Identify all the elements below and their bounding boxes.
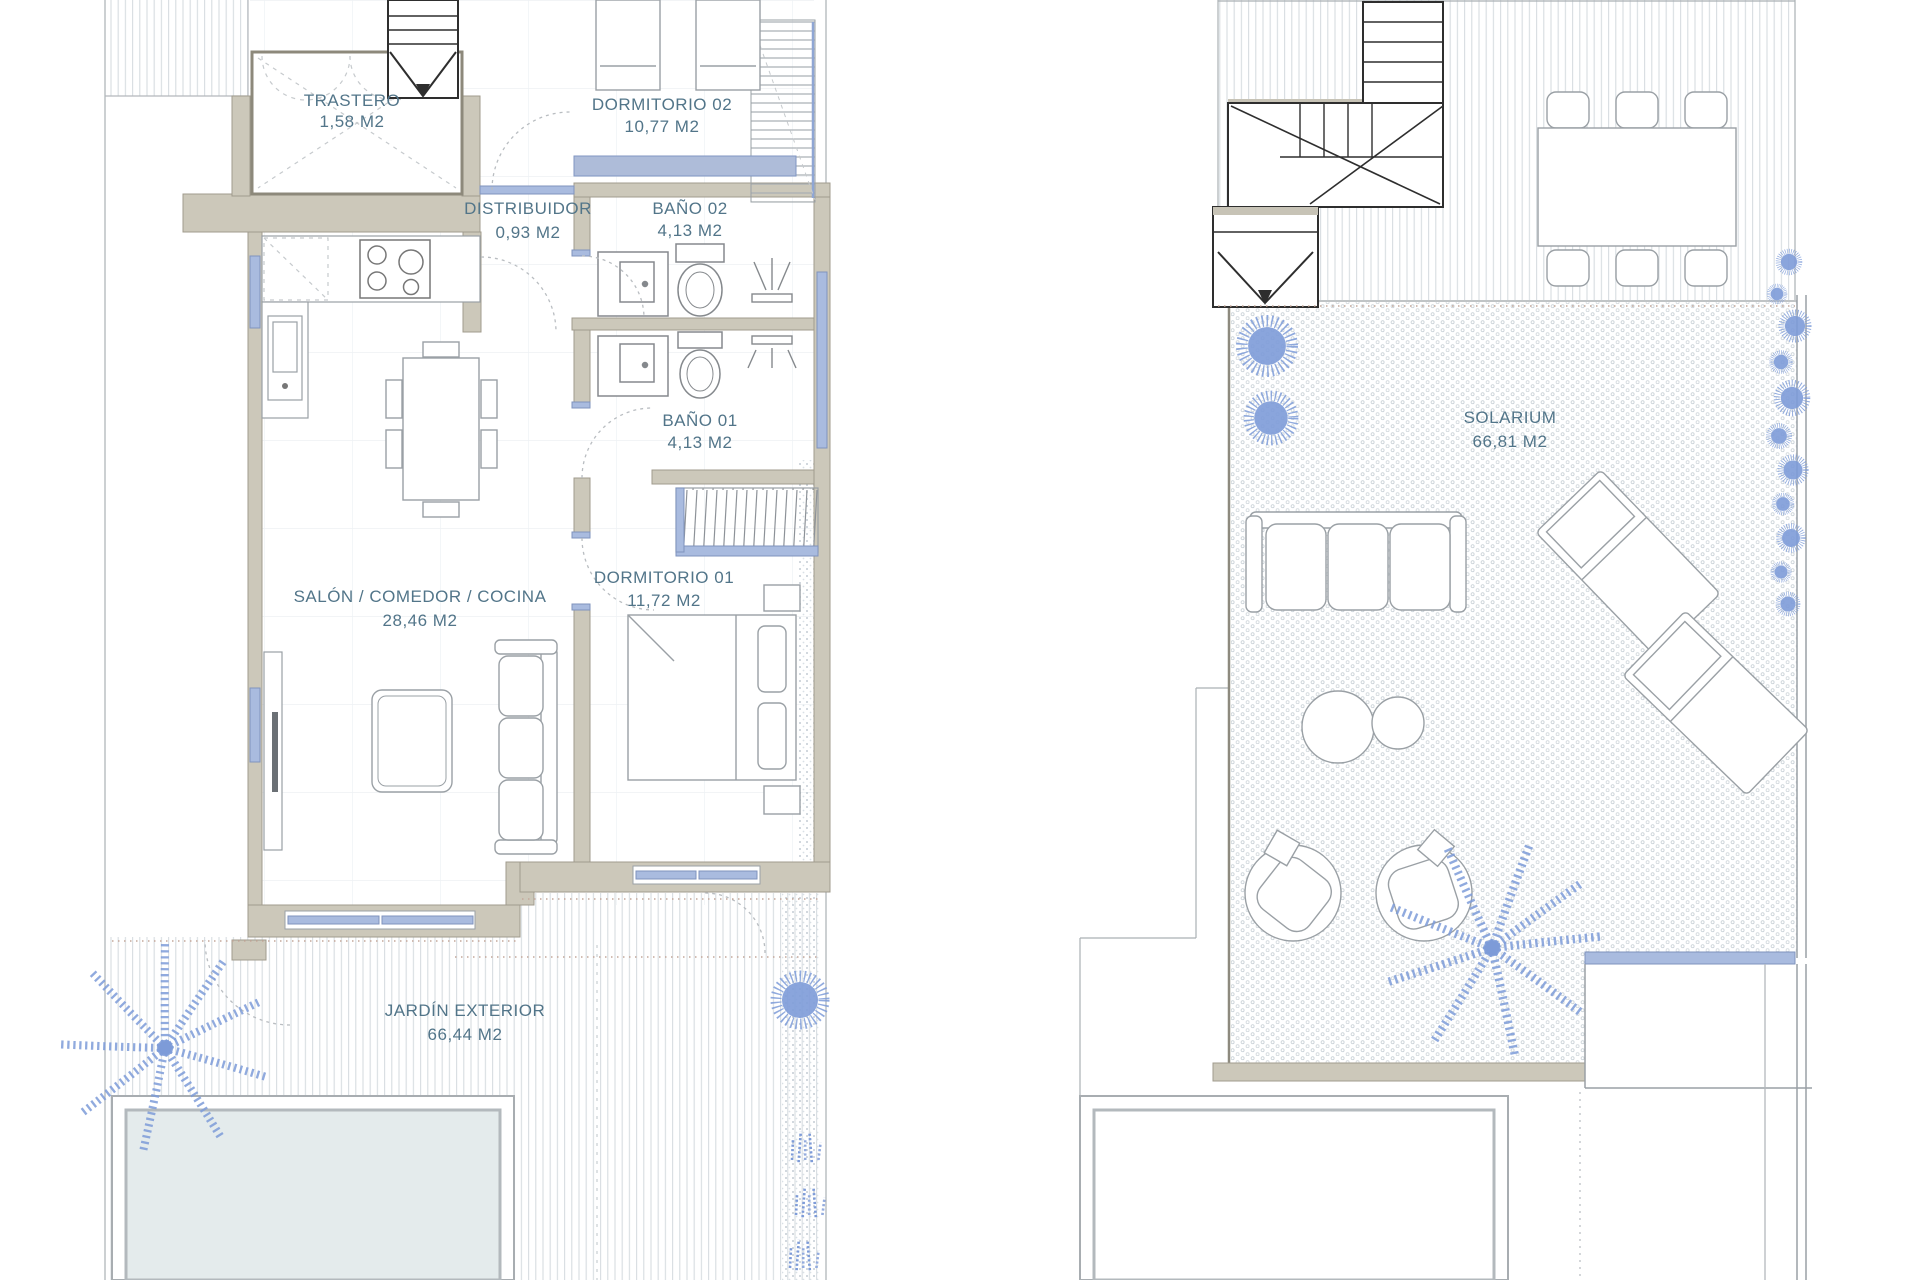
entry-deck	[105, 0, 248, 96]
label-distribuidor-area: 0,93 M2	[496, 223, 561, 242]
label-bano-02-area: 4,13 M2	[658, 221, 723, 240]
label-solarium-area: 66,81 M2	[1473, 432, 1548, 451]
swimming-pool	[112, 1096, 514, 1280]
sofa	[495, 640, 557, 854]
stairs-ground-floor	[388, 0, 458, 98]
ground-floor-plan: TRASTERO 1,58 M2 DORMITORIO 02 10,77 M2 …	[45, 0, 830, 1280]
roof-plan: SOLARIUM 66,81 M2	[1080, 0, 1812, 1280]
label-distribuidor: DISTRIBUIDOR	[464, 199, 592, 218]
cooktop-icon	[360, 240, 430, 298]
floorplan-page: TRASTERO 1,58 M2 DORMITORIO 02 10,77 M2 …	[0, 0, 1920, 1280]
roof-dining-set	[1538, 92, 1736, 286]
garden-window-right	[633, 866, 760, 884]
sink-icon	[268, 316, 302, 400]
label-jardin-area: 66,44 M2	[428, 1025, 503, 1044]
outdoor-sofa	[1246, 512, 1466, 612]
label-solarium: SOLARIUM	[1464, 408, 1557, 427]
label-bano-02: BAÑO 02	[652, 199, 727, 218]
label-dormitorio-01-area: 11,72 M2	[627, 591, 701, 610]
label-trastero-area: 1,58 M2	[320, 112, 385, 131]
label-bano-01: BAÑO 01	[662, 411, 737, 430]
label-salon-area: 28,46 M2	[383, 611, 458, 630]
pool-outline-roof	[1080, 1096, 1508, 1280]
label-jardin: JARDÍN EXTERIOR	[385, 1001, 546, 1020]
label-dormitorio-02: DORMITORIO 02	[592, 95, 732, 114]
label-salon: SALÓN / COMEDOR / COCINA	[294, 587, 547, 606]
label-bano-01-area: 4,13 M2	[668, 433, 733, 452]
label-trastero: TRASTERO	[304, 91, 401, 110]
garden-window-left	[285, 911, 475, 929]
wardrobe	[574, 156, 796, 176]
coffee-table	[372, 690, 452, 792]
label-dormitorio-01: DORMITORIO 01	[594, 568, 734, 587]
tv-unit	[264, 652, 282, 850]
floorplan-drawing: TRASTERO 1,58 M2 DORMITORIO 02 10,77 M2 …	[0, 0, 1920, 1280]
double-bed	[628, 585, 800, 814]
label-dormitorio-02-area: 10,77 M2	[625, 117, 700, 136]
stairs-to-roof	[676, 488, 818, 556]
